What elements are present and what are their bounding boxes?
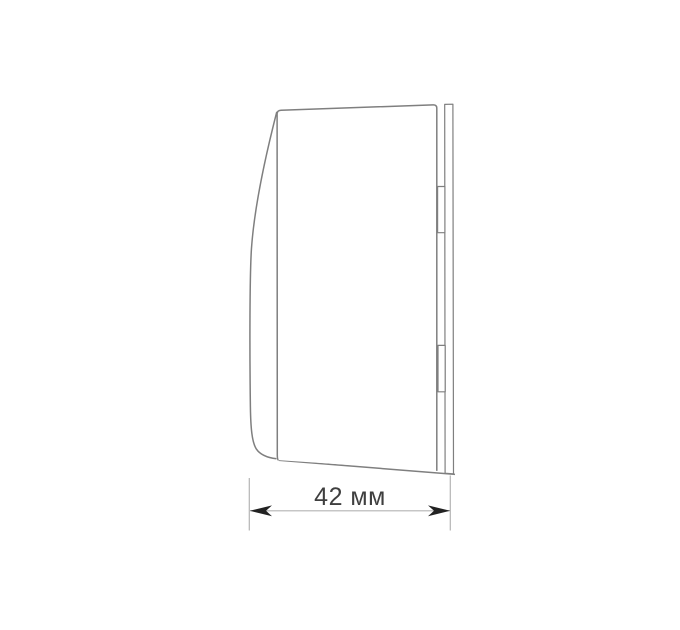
mount-clip-top-icon <box>438 187 445 233</box>
dimension-label: 42 мм <box>314 483 386 511</box>
rocker-cover <box>250 112 277 459</box>
switch-body <box>277 105 437 471</box>
frame-strip <box>445 104 454 474</box>
product-drawing-canvas: 42 мм <box>0 0 680 630</box>
switch-side-view-drawing: 42 мм <box>0 0 680 630</box>
mount-clip-bottom-icon <box>438 345 445 391</box>
